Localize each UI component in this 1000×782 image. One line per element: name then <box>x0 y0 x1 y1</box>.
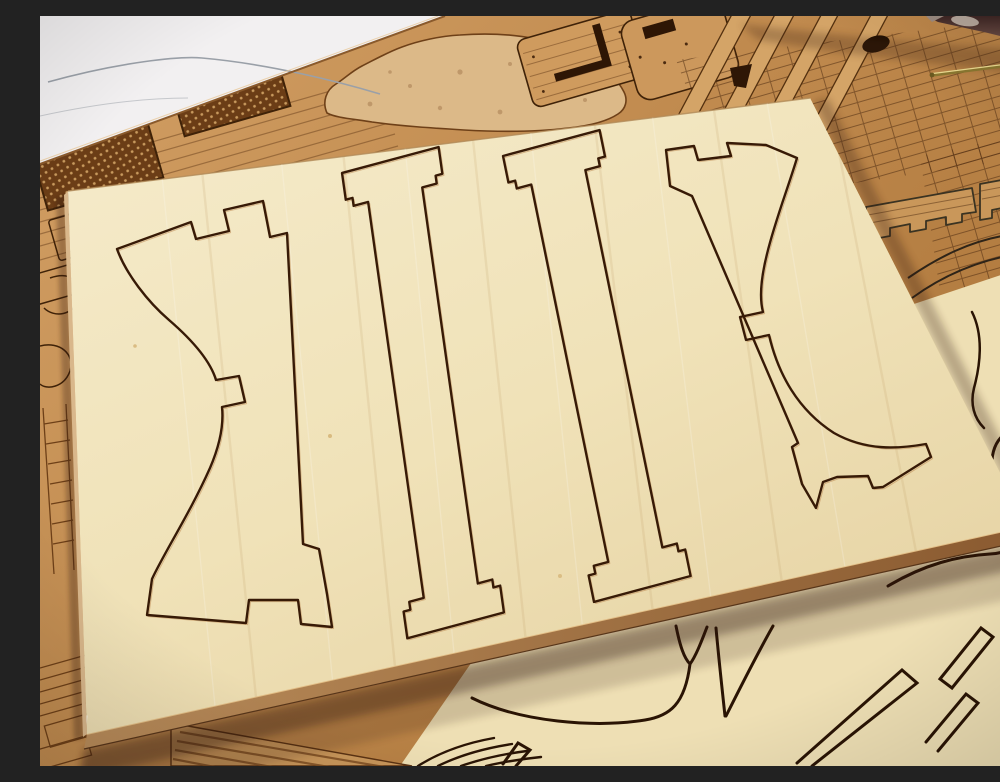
vignette-overlay <box>40 16 1000 766</box>
photo-laser-cut-model-kit <box>40 16 1000 766</box>
scene-canvas <box>40 16 1000 766</box>
